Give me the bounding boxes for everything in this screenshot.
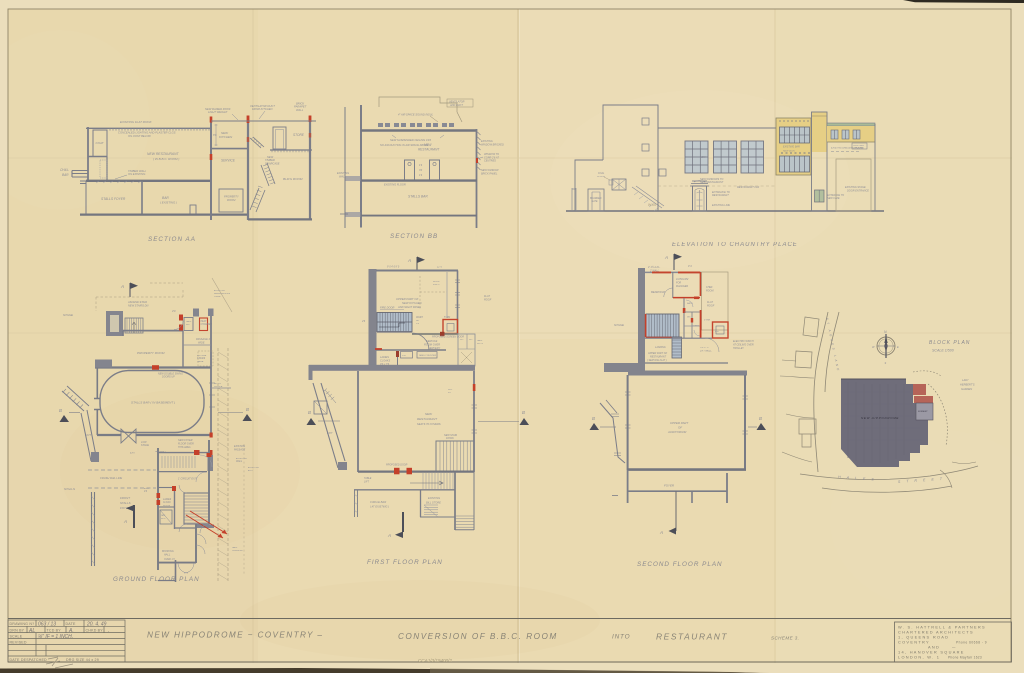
svg-text:( AT EXISTING ): ( AT EXISTING ) <box>370 505 389 509</box>
svg-text:OVER: OVER <box>214 296 221 298</box>
svg-text:EXIT: EXIT <box>327 432 333 435</box>
svg-text:NEW KITCHEN: NEW KITCHEN <box>402 301 423 305</box>
svg-text:FIRE DOOR: FIRE DOOR <box>380 306 395 310</box>
svg-text:OF: OF <box>678 426 682 430</box>
svg-text:LIFT WELL: LIFT WELL <box>700 350 712 352</box>
svg-text:12' 6: 12' 6 <box>437 267 443 269</box>
svg-text:PROPERTY: PROPERTY <box>224 195 239 199</box>
svg-text:SERVICE: SERVICE <box>426 339 438 343</box>
svg-text:ROOF: ROOF <box>433 281 440 283</box>
svg-text:WC: WC <box>460 339 464 341</box>
svg-text:WASH: WASH <box>416 316 423 319</box>
svg-text:W 05: W 05 <box>648 203 656 207</box>
svg-text:A.: A. <box>68 628 74 634</box>
svg-text:RESTAURANT FLR: RESTAURANT FLR <box>737 186 759 189</box>
svg-text:SEATS 70 COVERS: SEATS 70 COVERS <box>417 422 441 426</box>
svg-text:20. 4. 49: 20. 4. 49 <box>86 622 107 628</box>
svg-text:RESTAURANT: RESTAURANT <box>656 632 728 642</box>
svg-text:LIFT: LIFT <box>715 331 720 333</box>
svg-text:SCALE: SCALE <box>10 634 23 638</box>
svg-text:LIFT: LIFT <box>364 480 369 483</box>
svg-text:BRICK PANEL: BRICK PANEL <box>481 172 498 175</box>
svg-text:CENTRES: CENTRES <box>484 160 496 163</box>
svg-text:OPENING: OPENING <box>232 550 243 552</box>
svg-text:LIFT: LIFT <box>402 355 407 357</box>
svg-text:LADY: LADY <box>962 378 969 382</box>
svg-text:STALLS BAR ( IN BASEMENT: STALLS BAR ( IN BASEMENT ) <box>131 401 175 405</box>
svg-text:ASCEND STAIR: ASCEND STAIR <box>127 300 147 304</box>
svg-text:PROPERTY ROOM: PROPERTY ROOM <box>137 351 165 355</box>
svg-text:EXISTING BAR: EXISTING BAR <box>783 146 800 149</box>
svg-text:EXISTING: EXISTING <box>428 496 440 500</box>
svg-text:RESTAURANT: RESTAURANT <box>712 194 729 197</box>
svg-text:EXISTING FLAT ROOF: EXISTING FLAT ROOF <box>120 120 152 124</box>
svg-text:SCENERY: SCENERY <box>918 411 928 413</box>
svg-text:NEW: NEW <box>700 156 706 159</box>
svg-text:ELEVATION TO CHAUNTRY PLACE: ELEVATION TO CHAUNTRY PLACE <box>672 242 798 248</box>
svg-text:STALLS FOYER: STALLS FOYER <box>101 197 126 201</box>
svg-text:LONDON, W. 1: LONDON, W. 1 <box>898 654 940 659</box>
svg-text:DRG SIZE 44 x 29: DRG SIZE 44 x 29 <box>66 658 99 662</box>
svg-text:WC: WC <box>469 339 473 341</box>
svg-text:4'0: 4'0 <box>172 309 176 313</box>
svg-text:063 / 13: 063 / 13 <box>38 622 56 628</box>
svg-text:DOORS UP: DOORS UP <box>162 376 175 379</box>
svg-text:GROUND FLOOR PLAN: GROUND FLOOR PLAN <box>113 576 200 583</box>
svg-text:BOX: BOX <box>161 518 166 520</box>
svg-text:HERE: HERE <box>197 361 204 363</box>
svg-text:AL: AL <box>28 628 35 634</box>
svg-text:SILL: SILL <box>448 389 453 391</box>
svg-text:DATE: DATE <box>66 622 77 626</box>
svg-text:CHKD BY: CHKD BY <box>86 628 104 632</box>
svg-text:OVER 1'3: OVER 1'3 <box>164 558 175 561</box>
svg-text:CIRCLE: CIRCLE <box>214 386 223 388</box>
svg-text:DRAWING N?: DRAWING N? <box>10 622 35 626</box>
svg-text:B: B <box>592 416 595 421</box>
svg-text:SERVERY: SERVERY <box>155 451 166 453</box>
svg-text:8'6: 8'6 <box>213 133 217 137</box>
svg-text:A: A <box>123 519 127 524</box>
svg-text:GATE: GATE <box>592 200 599 203</box>
svg-text:EXIT: EXIT <box>85 433 91 437</box>
svg-text:5' RM: 5' RM <box>444 316 450 319</box>
svg-text:A: A <box>659 530 663 535</box>
svg-text:ROOM OVER: ROOM OVER <box>424 343 440 347</box>
svg-text:WC: WC <box>186 324 190 326</box>
svg-text:EXIT: EXIT <box>248 470 254 472</box>
svg-text:SCALE 1/500: SCALE 1/500 <box>932 349 954 353</box>
svg-text:WC: WC <box>687 317 691 319</box>
svg-text:A: A <box>120 284 124 289</box>
svg-text:UP TO: UP TO <box>214 383 221 385</box>
svg-text:NEW: NEW <box>232 547 238 549</box>
svg-text:BAR: BAR <box>162 196 169 200</box>
svg-text:SECTION BB: SECTION BB <box>390 233 438 240</box>
svg-text:NEW SUSPENDED CEILING 19'6: NEW SUSPENDED CEILING 19'6 <box>390 138 431 142</box>
svg-text:WALL: WALL <box>236 460 243 463</box>
svg-text:SCHEME 3.: SCHEME 3. <box>771 636 799 641</box>
svg-text:EXIT: EXIT <box>130 453 136 455</box>
svg-text:DOWN: DOWN <box>446 437 454 440</box>
svg-text:Phone 60668 - 9: Phone 60668 - 9 <box>956 641 987 645</box>
svg-text:WC'S: WC'S <box>477 343 483 345</box>
svg-text:BAR: BAR <box>62 173 69 177</box>
svg-text:STALLS: STALLS <box>64 487 75 491</box>
svg-text:STAIRS: STAIRS <box>197 357 206 360</box>
svg-text:NEW: NEW <box>424 143 432 147</box>
svg-text:A: A <box>387 533 391 538</box>
svg-text:BLOCK PLAN: BLOCK PLAN <box>929 340 970 346</box>
svg-text:LIGHT: LIGHT <box>433 284 440 286</box>
svg-text:CIRCLE BAR: CIRCLE BAR <box>370 500 386 504</box>
svg-text:FOYER: FOYER <box>664 484 674 488</box>
svg-text:( IN B.B.C. ROOM ): ( IN B.B.C. ROOM ) <box>153 157 179 161</box>
svg-text:9' 0 4' 6 9' 0: 9' 0 4' 6 9' 0 <box>387 266 400 269</box>
svg-text:RESTAURANT: RESTAURANT <box>417 417 438 421</box>
svg-text:FRONT: FRONT <box>120 496 130 500</box>
svg-text:E: E <box>897 345 899 349</box>
svg-text:⅛" IF = 1 INCH.: ⅛" IF = 1 INCH. <box>38 634 73 640</box>
svg-text:TROLLEY: TROLLEY <box>733 347 744 350</box>
svg-text:AUDITORIUM: AUDITORIUM <box>667 430 687 434</box>
svg-text:N: N <box>884 330 887 334</box>
svg-text:BLD'G ROOM: BLD'G ROOM <box>283 177 303 181</box>
svg-text:5'2 x 7'8: 5'2 x 7'8 <box>700 347 709 349</box>
svg-text:DOOR ENTRANCE: DOOR ENTRANCE <box>847 189 869 192</box>
svg-text:B: B <box>759 416 762 421</box>
svg-text:CRUSH RAIL LINE: CRUSH RAIL LINE <box>100 476 122 480</box>
svg-text:1' CIRCUIT EXIT: 1' CIRCUIT EXIT <box>178 478 197 481</box>
svg-text:FIRST FLOOR PLAN: FIRST FLOOR PLAN <box>367 559 443 566</box>
svg-text:ON EXISTING: ON EXISTING <box>128 172 145 176</box>
svg-text:LIGHT WEIGHT: LIGHT WEIGHT <box>208 110 228 114</box>
svg-text:PASSAGE: PASSAGE <box>234 448 246 451</box>
svg-text:NEW STAIRS DN: NEW STAIRS DN <box>128 303 149 307</box>
svg-text:SECTION AA: SECTION AA <box>148 236 196 243</box>
svg-text:CONCEALED LIGHTING AND PLASTER: CONCEALED LIGHTING AND PLASTER CLGS <box>118 131 176 135</box>
svg-text:FROM KITCHEN: FROM KITCHEN <box>252 107 273 111</box>
svg-text:EXISTING: EXISTING <box>236 458 247 460</box>
svg-text:S: S <box>885 361 887 365</box>
svg-text:EXISTING DRESSING ROOMS: EXISTING DRESSING ROOMS <box>831 148 864 150</box>
svg-text:WALL: WALL <box>339 174 347 178</box>
svg-text:AND SIGHT PANEL: AND SIGHT PANEL <box>397 305 422 309</box>
svg-text:5' RM: 5' RM <box>704 320 710 322</box>
svg-text:ON JOIST BELOW: ON JOIST BELOW <box>128 134 151 138</box>
svg-text:NO AIR DUCTING IN AIR SPACE AB: NO AIR DUCTING IN AIR SPACE ABOVE <box>380 143 429 147</box>
svg-text:BOOKING: BOOKING <box>162 550 174 553</box>
svg-text:EXISTING: EXISTING <box>337 171 349 175</box>
svg-text:2'6: 2'6 <box>361 320 366 323</box>
svg-text:PASS COUNTER: PASS COUNTER <box>419 354 437 357</box>
svg-text:STORE: STORE <box>293 133 305 137</box>
svg-text:ROOM: ROOM <box>227 198 236 202</box>
svg-text:NEW SIGN: NEW SIGN <box>783 151 795 153</box>
svg-text:REVISED: REVISED <box>10 641 27 645</box>
svg-text:CLOAK: CLOAK <box>163 501 171 504</box>
svg-text:CONVERSION OF B.B.C.: CONVERSION OF B.B.C. ROOM <box>398 632 558 641</box>
svg-text:COVENTRY: COVENTRY <box>898 640 930 645</box>
svg-text:NEW: NEW <box>186 321 192 323</box>
svg-text:INTO: INTO <box>612 634 630 641</box>
svg-text:CHILL: CHILL <box>60 168 69 172</box>
svg-text:COAL: COAL <box>598 172 605 175</box>
svg-text:HERBERT'S: HERBERT'S <box>960 382 975 386</box>
svg-text:RESTAURANT: RESTAURANT <box>418 148 440 152</box>
svg-text:KITCHEN: KITCHEN <box>219 135 233 139</box>
svg-text:BOARDED: BOARDED <box>590 197 602 200</box>
svg-text:COAT: COAT <box>96 141 105 145</box>
svg-text:SECOND FLOOR PLAN: SECOND FLOOR PLAN <box>637 561 723 568</box>
svg-text:PROPOSED DOOR: PROPOSED DOOR <box>386 464 408 467</box>
svg-text:4' 1½ A.F.L.: 4' 1½ A.F.L. <box>648 265 661 269</box>
svg-text:CCA1/3/19400/2: CCA1/3/19400/2 <box>418 658 452 663</box>
svg-text:HEAT: HEAT <box>201 320 208 323</box>
svg-text:GARDEN: GARDEN <box>961 387 972 391</box>
svg-text:WALL: WALL <box>296 108 304 112</box>
svg-text:NEW: NEW <box>477 340 483 342</box>
svg-text:4" AIR SPACE SOUND INSUL: 4" AIR SPACE SOUND INSUL <box>398 113 434 117</box>
svg-text:LANDING: LANDING <box>655 346 666 349</box>
svg-text:B: B <box>59 408 62 413</box>
svg-text:LADIES: LADIES <box>163 498 172 501</box>
svg-text:MANAGER: MANAGER <box>676 285 688 288</box>
svg-text:AND DUCT: AND DUCT <box>449 104 463 107</box>
svg-text:B: B <box>246 407 249 412</box>
svg-text:UP: UP <box>416 320 420 322</box>
svg-text:STAGE: STAGE <box>63 313 74 317</box>
svg-text:( SERVICE FLAT ): ( SERVICE FLAT ) <box>647 359 667 362</box>
svg-text:RESTAURANT: RESTAURANT <box>650 355 667 358</box>
svg-text:NEW HIPPODROME ~ COV: NEW HIPPODROME ~ COVENTRY – <box>147 631 323 640</box>
svg-text:NEW RESTAURANT: NEW RESTAURANT <box>147 152 180 156</box>
svg-text:Phone Mayfair 1623: Phone Mayfair 1623 <box>948 655 982 659</box>
svg-text:NEW CAFE: NEW CAFE <box>827 197 840 200</box>
svg-text:SERVICE: SERVICE <box>221 159 236 163</box>
svg-text:EXISTING: EXISTING <box>248 467 259 469</box>
svg-text:THIS AREA: THIS AREA <box>178 446 191 449</box>
svg-text:EXISTING LINE: EXISTING LINE <box>712 204 730 207</box>
svg-text:B: B <box>308 410 311 415</box>
svg-text:STAGE: STAGE <box>614 323 625 327</box>
svg-text:HALL: HALL <box>164 554 171 557</box>
svg-text:STAGE: STAGE <box>141 444 149 447</box>
svg-text:ROOF: ROOF <box>484 298 492 301</box>
svg-text:NEW: NEW <box>425 412 433 416</box>
svg-text:TCD BY: TCD BY <box>47 628 62 632</box>
svg-text:BILL STORE: BILL STORE <box>426 500 441 504</box>
svg-text:A: A <box>407 258 411 263</box>
svg-text:NEW HIPPODROME: NEW HIPPODROME <box>861 416 899 420</box>
svg-text:( EXISTING ): ( EXISTING ) <box>160 201 177 205</box>
svg-text:.: . <box>108 628 109 634</box>
svg-text:STALLS: STALLS <box>120 501 131 505</box>
svg-text:BEDROOM: BEDROOM <box>651 290 666 294</box>
svg-text:STALLS BAR: STALLS BAR <box>408 195 428 199</box>
svg-text:EXIT: EXIT <box>144 488 150 490</box>
svg-text:B: B <box>522 410 525 415</box>
svg-text:WINDOW BRICKED: WINDOW BRICKED <box>481 143 504 146</box>
svg-text:ROOF: ROOF <box>707 304 715 307</box>
svg-text:FUTURE: FUTURE <box>197 355 207 357</box>
svg-text:WIDE: WIDE <box>198 341 205 344</box>
svg-text:A: A <box>664 255 668 260</box>
svg-text:EXISTING FLOOR: EXISTING FLOOR <box>384 183 406 187</box>
svg-text:DRN BY: DRN BY <box>10 628 25 632</box>
svg-text:PAY: PAY <box>161 514 166 517</box>
svg-text:ROOM: ROOM <box>706 289 713 292</box>
svg-text:DATE DESPATCHED: DATE DESPATCHED <box>10 658 48 662</box>
svg-text:UPPER PART: UPPER PART <box>670 421 688 425</box>
